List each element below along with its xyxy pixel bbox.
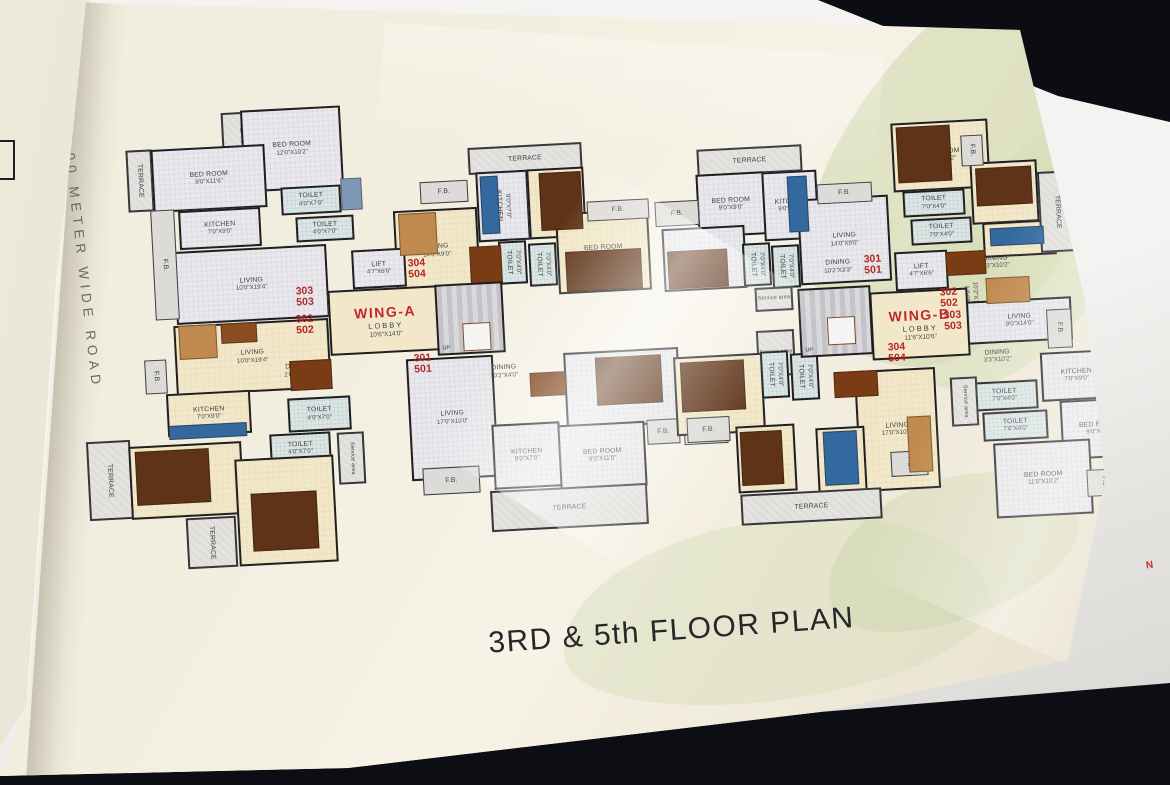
room-dimensions: 12'0"X10'2" [276, 149, 308, 157]
room-toilet: TOILET4'0"X7'0" [280, 184, 341, 215]
furniture-block [823, 430, 860, 486]
staircase: UP [797, 285, 874, 358]
room-dimensions: 14'0"X9'0" [831, 240, 859, 248]
room-dimensions: 9'0"X11'0" [589, 456, 617, 464]
room-dimensions: 9'0"X14'0" [1006, 321, 1034, 329]
room-label: F.B. [838, 189, 851, 197]
furniture-block [340, 177, 363, 210]
room-f-b-: F.B. [1046, 308, 1073, 348]
staircase: UP [434, 281, 506, 355]
room-terrace: TERRACE [490, 483, 649, 532]
room-dimensions: 4'7"X6'6" [909, 271, 934, 279]
room-toilet: TOILET4'0"X7'0" [287, 395, 352, 432]
furniture-block [135, 448, 212, 506]
room-label: TERRACE [732, 156, 766, 165]
room-dimensions: 9'0"X11'6" [195, 179, 223, 187]
room-dimensions: 7'0"X4'0" [513, 250, 521, 275]
room-dimensions: 7'0"X4'0" [786, 254, 794, 279]
room-f-b-: F.B. [587, 198, 650, 221]
room-label: TERRACE [135, 164, 144, 198]
room-dimensions: 9'0"X7'0" [515, 456, 540, 464]
room-label: TOILET [749, 252, 758, 277]
room-dimensions: 7'0"X4'0" [543, 252, 551, 277]
stair-landing [462, 322, 491, 351]
room-dimensions: 4'0"X7'0" [307, 414, 332, 422]
furniture-block [985, 276, 1030, 304]
room-toilet: TOILET7'0"X4'0" [771, 244, 801, 288]
room-dimensions: 7'0"X4'0" [757, 252, 765, 277]
unit-number-303-503: 303503 [943, 310, 962, 333]
room-label: F.B. [702, 425, 715, 433]
furniture-block [169, 422, 248, 440]
room-terrace: TERRACE [86, 440, 134, 521]
room-toilet: TOILET7'0"X4'0" [970, 379, 1038, 411]
room-dimensions: 7'0"X4'0" [805, 364, 813, 389]
room-dimensions: 7'0"X4'0" [922, 203, 947, 211]
room-toilet: TOILET7'0"X4'0" [528, 242, 558, 286]
room-dimensions: 10'2"X3'3" [824, 267, 852, 275]
room-label: TOILET [797, 364, 806, 389]
room-dining: DINING3'3"X10'2" [960, 337, 1035, 376]
furniture-block [178, 324, 218, 360]
room-kitchen: KITCHEN9'0"X7'0" [491, 421, 562, 489]
lobby-dimensions: 10'6"X14'0" [369, 330, 402, 339]
furniture-block [990, 226, 1045, 247]
room-dimensions: 7'0"X4'0" [1003, 426, 1028, 434]
unit-number-303-503: 303503 [295, 286, 314, 309]
room-f-b-: F.B. [960, 134, 984, 166]
room-dimensions: 10'0"X19'4" [237, 357, 269, 365]
unit-number-302-502: 302502 [295, 314, 314, 337]
room-bed-room: BED ROOM11'0"X10'2" [993, 439, 1094, 519]
room-label: TOILET [535, 252, 544, 277]
room-dimensions: 9'0"X7'0" [503, 193, 511, 218]
unit-number-304-504: 304504 [407, 258, 426, 281]
room-toilet: TOILET7'0"X4'0" [910, 216, 972, 245]
room-label: TOILET [767, 362, 776, 387]
room-label: TERRACE [1053, 194, 1062, 228]
furniture-block [907, 415, 934, 472]
furniture-block [251, 490, 320, 551]
unit-number-302-502: 302502 [939, 287, 958, 310]
room-label: F.B. [968, 144, 976, 157]
unit-number-304-504: 304504 [887, 342, 906, 365]
room-f-b-: F.B. [419, 180, 468, 204]
furniture-block [787, 176, 810, 233]
room-f-b-: F.B. [422, 466, 480, 496]
room-label: Service area [348, 442, 356, 475]
room-label: Service area [758, 295, 791, 303]
stair-up-label: UP [442, 345, 450, 351]
room-label: TERRACE [105, 463, 114, 497]
floor-plan: TERRACEBED ROOM12'0"X10'2"TERRACEBED ROO… [0, 0, 1170, 785]
furniture-block [975, 166, 1033, 207]
north-marker: N [1145, 560, 1154, 572]
room-dimensions: 7'0"X4'0" [929, 231, 954, 239]
room-service-area: Service area [337, 431, 367, 484]
room-bed-room: BED ROOM9'0"X11'0" [557, 421, 647, 490]
room-dimensions: 11'0"X10'2" [1028, 479, 1059, 487]
room-dimensions: 10'2"X4'0" [490, 372, 518, 380]
room-label: TERRACE [794, 502, 828, 511]
room-f-b-: F.B. [817, 182, 873, 205]
furniture-block [289, 359, 333, 391]
room-label: F.B. [671, 209, 684, 217]
furniture-block [667, 248, 729, 289]
furniture-block [740, 430, 785, 486]
room-label: Service area [961, 385, 969, 418]
furniture-block [945, 250, 986, 276]
wing-name: WING-A [354, 302, 417, 321]
furniture-block [896, 125, 953, 184]
room-label: TOILET [778, 254, 787, 279]
room-toilet: TOILET7'0"X4'0" [790, 352, 820, 400]
room-dimensions: 7'0"X9'0" [1064, 376, 1089, 384]
room-terrace: TERRACE [740, 487, 882, 525]
room-label: F.B. [1055, 322, 1063, 335]
furniture-block [539, 171, 584, 231]
room-f-b-: F.B. [150, 209, 180, 320]
room-dimensions: 4'0"X7'0" [299, 200, 324, 208]
room-label: TERRACE [508, 154, 542, 163]
room-kitchen: KITCHEN7'0"X9'0" [178, 207, 262, 250]
furniture-block [595, 354, 663, 405]
left-page-plan-fragment [0, 140, 15, 180]
room-lift: LIFT4'7"X6'6" [894, 250, 949, 292]
furniture-block [833, 370, 878, 398]
furniture-block [565, 248, 643, 292]
stair-up-label: UP [805, 347, 813, 353]
furniture-block [398, 212, 438, 256]
brochure-main-page: 24.00 METER WIDE ROAD TERRACEBED ROOM12'… [0, 0, 1170, 785]
wing-lobby-wing-a: WING-ALOBBY10'6"X14'0" [327, 285, 443, 356]
room-dimensions: 17'0"X10'0" [437, 418, 469, 426]
room-toilet: TOILET7'0"X4'0" [902, 188, 965, 217]
room-dimensions: 7'0"X9'0" [197, 414, 222, 422]
room-label: F.B. [612, 206, 625, 214]
lobby-label: LOBBY [368, 320, 403, 331]
furniture-block [469, 245, 503, 285]
lobby-label: LOBBY [903, 323, 938, 334]
furniture-block [680, 359, 747, 412]
room-dimensions: 10'0"X19'4" [236, 285, 268, 293]
brochure-photo: 24.00 METER WIDE ROAD TERRACEBED ROOM12'… [0, 0, 1170, 785]
room-lift: LIFT4'7"X6'6" [351, 248, 407, 290]
room-service-area: Service area [754, 286, 793, 312]
room-label: F.B. [438, 188, 451, 196]
room-label: F.B. [657, 427, 670, 435]
room-f-b-: F.B. [654, 200, 699, 227]
room-toilet: TOILET7'0"X4'0" [760, 350, 790, 398]
unit-number-301-501: 301501 [863, 254, 882, 277]
room-bed-room: BED ROOM9'0"X11'6" [150, 144, 267, 213]
room-f-b-: F.B. [686, 416, 730, 443]
room-f-b-: F.B. [144, 359, 168, 394]
unit-number-301-501: 301501 [413, 353, 432, 376]
room-label: F.B. [161, 259, 169, 272]
room-dimensions: 7'0"X4'0" [992, 396, 1017, 404]
room-dimensions: 4'7"X6'6" [367, 269, 392, 277]
furniture-block [221, 322, 258, 344]
room-label: TERRACE [552, 503, 586, 512]
lobby-dimensions: 11'6"X10'6" [904, 333, 937, 342]
room-dimensions: 3'3"X10'2" [984, 357, 1012, 365]
room-label: TERRACE [207, 525, 216, 559]
room-toilet: TOILET7'0"X4'0" [982, 409, 1048, 441]
room-toilet: TOILET7'0"X4'0" [742, 242, 772, 286]
room-dimensions: 4'0"X7'0" [313, 229, 338, 237]
room-dimensions: 7'0"X9'0" [208, 229, 233, 237]
room-label: F.B. [152, 371, 160, 384]
room-label: TOILET [505, 250, 514, 275]
room-dimensions: 9'0"X9'0" [719, 205, 744, 213]
room-service-area: Service area [950, 376, 980, 426]
furniture-block [529, 371, 566, 397]
furniture-block [479, 176, 500, 235]
room-toilet: TOILET4'0"X7'0" [295, 214, 354, 242]
room-label: F.B. [445, 476, 458, 484]
room-dimensions: 7'0"X4'0" [775, 362, 783, 387]
stair-landing [827, 316, 856, 345]
room-terrace: TERRACE [186, 516, 239, 570]
